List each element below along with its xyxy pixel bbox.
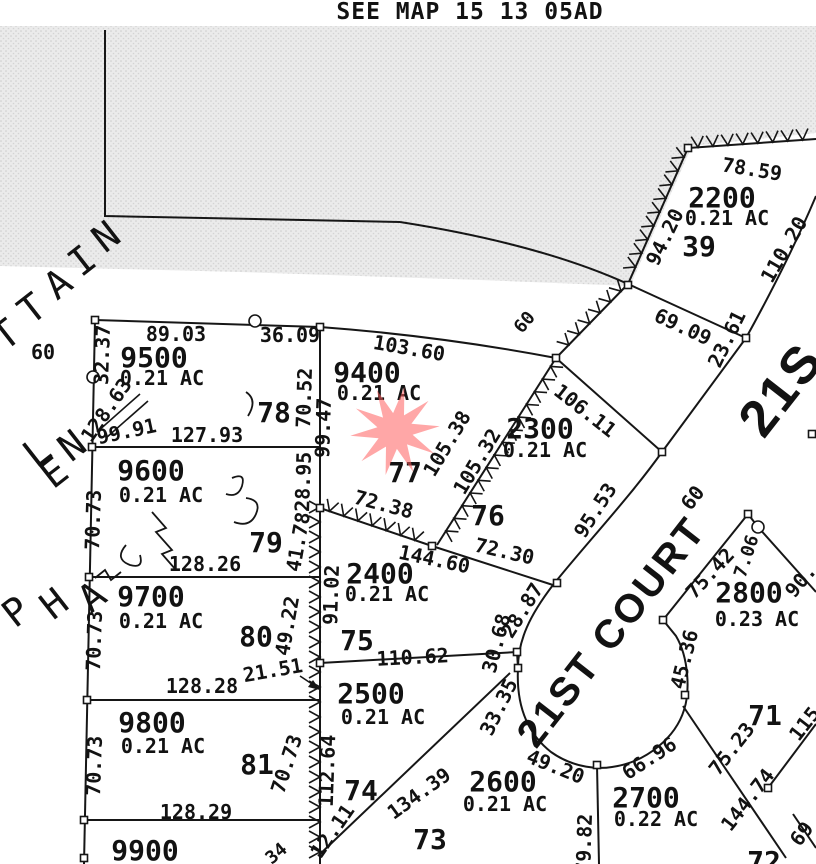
map-label-dim: 60: [31, 340, 55, 364]
map-label-num: 77: [388, 456, 422, 489]
map-label-dim: 79.82: [571, 813, 597, 864]
map-label-num: 72: [747, 845, 781, 864]
map-label-title: SEE MAP 15 13 05AD: [336, 0, 603, 25]
map-label-ac: 0.21 AC: [503, 438, 587, 462]
map-label-num: 2800: [715, 576, 782, 609]
map-label-dim: 110.62: [376, 643, 449, 671]
map-label-num: 79: [249, 526, 283, 559]
map-label-ac: 0.21 AC: [121, 734, 205, 758]
map-label-num: 73: [413, 823, 447, 856]
map-label-num: 76: [471, 499, 505, 532]
map-label-dim: 128.26: [169, 552, 241, 576]
map-label-num: 78: [257, 396, 291, 429]
map-label-dim: 89.03: [146, 322, 206, 346]
map-label-dim: 112.64: [314, 734, 341, 807]
map-label-dim: 128.29: [160, 800, 232, 824]
map-label-dim: 70.73: [81, 735, 107, 796]
map-label-num: 80: [239, 620, 273, 653]
map-label-num: 9900: [111, 834, 178, 864]
map-label-dim: 36.09: [260, 323, 320, 347]
map-label-ac: 0.21 AC: [119, 609, 203, 633]
map-label-ac: 0.21 AC: [337, 381, 421, 405]
map-label-dim: 99.47: [310, 397, 336, 458]
map-label-dim: 91.02: [318, 564, 344, 625]
plat-map: SEE MAP 15 13 05AD22000.21 AC3978.5994.2…: [0, 0, 816, 864]
map-label-num: 39: [682, 230, 716, 263]
map-label-ac: 0.21 AC: [341, 705, 425, 729]
map-label-ac: 0.21 AC: [119, 483, 203, 507]
map-label-dim: 32.37: [89, 324, 115, 385]
map-label-ac: 0.21 AC: [345, 582, 429, 606]
map-label-dim: 70.73: [80, 489, 106, 550]
map-label-num: 74: [344, 774, 378, 807]
map-label-ac: 0.21 AC: [685, 206, 769, 230]
map-label-dim: 28.95: [290, 451, 316, 512]
map-label-num: 75: [340, 624, 374, 657]
map-label-ac: 0.22 AC: [614, 807, 698, 831]
map-label-num: 71: [748, 699, 782, 732]
map-label-ac: 0.23 AC: [715, 607, 799, 631]
map-label-ac: 0.21 AC: [463, 792, 547, 816]
map-label-dim: 127.93: [171, 423, 243, 447]
map-label-dim: 128.28: [166, 674, 238, 698]
